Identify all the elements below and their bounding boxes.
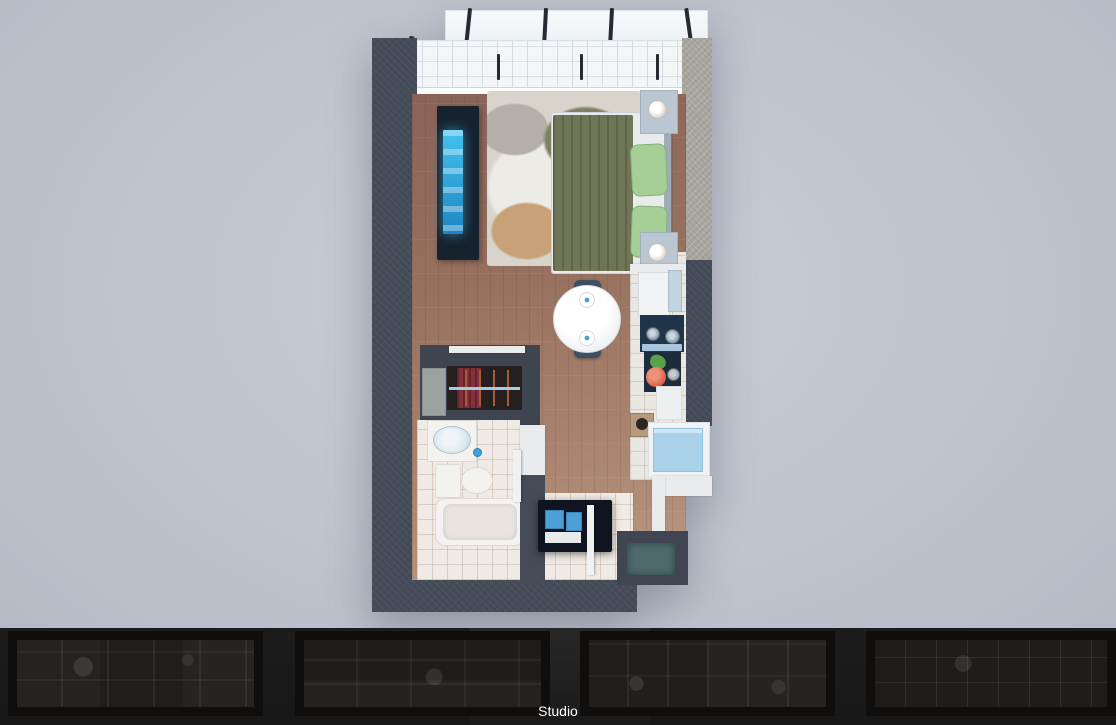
console-drawer	[545, 510, 564, 529]
fridge-side-panel	[668, 270, 682, 312]
floorplan-thumbnail-2[interactable]	[295, 631, 550, 716]
wall-right-lower	[686, 260, 712, 426]
floorplan-thumbnail-4[interactable]	[866, 631, 1116, 716]
viewer-stage: Tipología 2	[0, 0, 1116, 628]
bed-duvet	[553, 115, 633, 271]
entry-mat	[627, 543, 675, 575]
bathroom-door	[513, 450, 521, 502]
cabinet-opening	[636, 418, 648, 430]
toilet-bowl	[461, 467, 493, 494]
place-setting	[579, 292, 595, 308]
tv-screen	[443, 130, 463, 234]
counter-front	[642, 344, 682, 351]
console-drawer	[566, 512, 582, 531]
thumbnail-plan-graphic	[580, 631, 835, 716]
place-setting	[579, 330, 595, 346]
washing-machine	[653, 428, 703, 472]
thumbnail-plan-graphic	[8, 631, 263, 716]
cooking-pot	[667, 368, 680, 381]
window-post	[497, 54, 500, 80]
lamp	[648, 243, 667, 262]
stove-burner	[665, 329, 680, 344]
bath-wall-white	[520, 425, 545, 475]
thumbnail-plan-graphic	[866, 631, 1116, 716]
thumbnail-plan-graphic	[295, 631, 550, 716]
closet-rod	[449, 387, 520, 390]
shaft-niche	[422, 368, 446, 416]
thumbnail-carousel	[0, 628, 1116, 725]
floorplan-3d-view[interactable]	[365, 8, 710, 614]
floorplan-thumbnail-1[interactable]	[8, 631, 263, 716]
cup	[473, 448, 482, 457]
wall-left	[372, 38, 417, 612]
window-post	[580, 54, 583, 80]
balcony-floor	[407, 40, 708, 92]
kitchen-cabinet	[656, 386, 682, 420]
wall-cap-vertical	[652, 476, 665, 534]
pillow	[630, 143, 669, 197]
closet-trim	[449, 346, 525, 353]
fridge	[638, 272, 670, 316]
tomatoes	[646, 367, 666, 387]
console-shelf	[545, 532, 581, 543]
lamp	[648, 100, 667, 119]
bathtub-inner	[443, 504, 517, 540]
sink-bowl	[433, 426, 471, 454]
wall-cap-bottom-right	[665, 476, 712, 496]
window-post	[656, 54, 659, 80]
toilet-tank	[435, 464, 461, 498]
stove-burner	[646, 327, 660, 341]
entry-door-frame	[587, 505, 594, 575]
floorplan-thumbnail-3[interactable]	[580, 631, 835, 716]
wall-bottom	[372, 576, 637, 612]
wall-right-upper	[682, 38, 712, 260]
